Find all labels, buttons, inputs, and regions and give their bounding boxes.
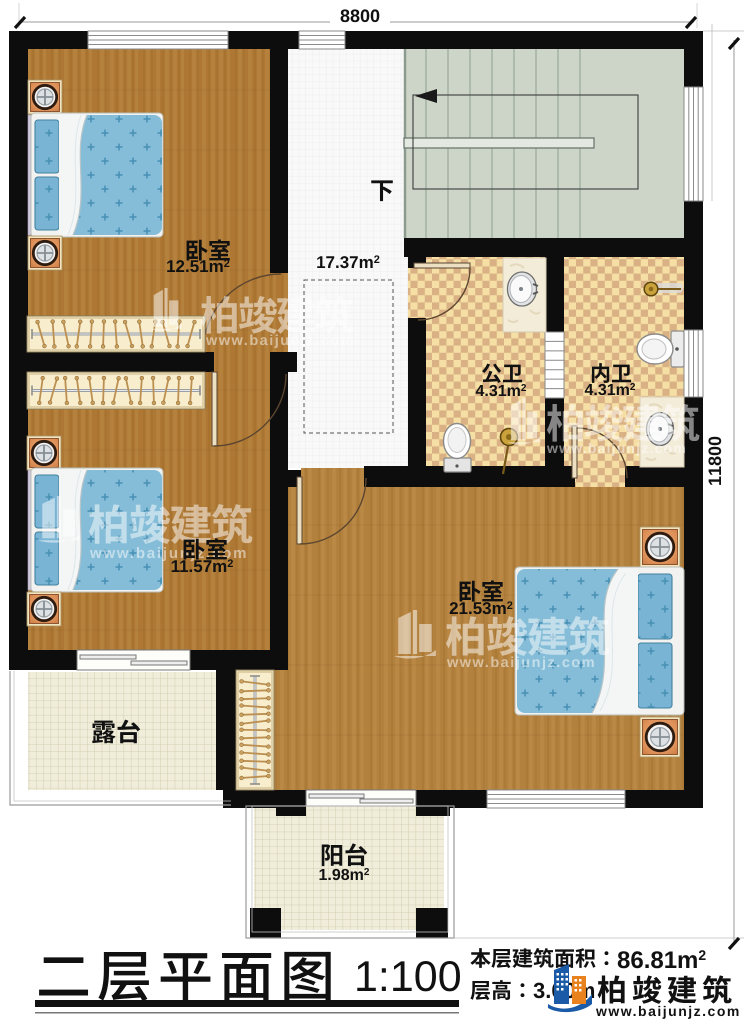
svg-text:www.baijunjz.com: www.baijunjz.com [546, 440, 687, 456]
svg-text:12.51m2: 12.51m2 [166, 257, 230, 276]
svg-text:21.53m2: 21.53m2 [449, 599, 513, 618]
svg-text:www.baijunjz.com: www.baijunjz.com [446, 655, 596, 671]
svg-text:4.31m2: 4.31m2 [585, 382, 636, 399]
svg-text:86.81m2: 86.81m2 [617, 947, 706, 974]
svg-text:www.baijunjz.com: www.baijunjz.com [595, 1003, 741, 1019]
svg-text:11.57m2: 11.57m2 [171, 557, 234, 576]
svg-text:1.98m2: 1.98m2 [319, 867, 370, 884]
svg-text:www.baijunjz.com: www.baijunjz.com [205, 333, 355, 349]
svg-text:17.37m2: 17.37m2 [316, 253, 380, 272]
svg-text:4.31m2: 4.31m2 [476, 383, 527, 400]
svg-text:1:100: 1:100 [354, 953, 462, 1001]
